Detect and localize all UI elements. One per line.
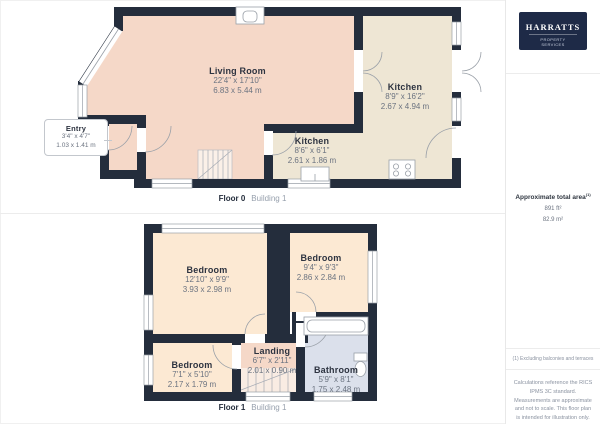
- fireplace-inner-icon: [243, 11, 257, 22]
- building-caption-label: Building 1: [251, 403, 286, 412]
- floorplan-page: Living Room 22'4" x 17'10" 6.83 x 5.44 m…: [0, 0, 600, 424]
- floor0-stairs: [198, 150, 232, 179]
- toilet-bowl-icon: [355, 362, 366, 377]
- floor0-plan-drawing: [0, 0, 505, 213]
- disclaimer-section: Calculations reference the RICS IPMS 3C …: [506, 370, 600, 424]
- room-dim-metric: 1.03 x 1.41 m: [47, 142, 105, 151]
- floor1-room-fills: [153, 224, 368, 392]
- floor1-caption: Floor 1Building 1: [0, 403, 505, 412]
- floor1-plan-drawing: [0, 213, 505, 424]
- entry-callout-tail: [104, 140, 112, 141]
- room-dim-imperial: 3'4" x 4'7": [47, 133, 105, 142]
- toilet-tank-icon: [354, 353, 367, 361]
- floor-caption-label: Floor 0: [219, 194, 246, 203]
- total-area-metric: 82.9 m²: [506, 217, 600, 223]
- total-area-imperial: 891 ft²: [506, 206, 600, 212]
- brand-section: HARRATTS PROPERTY SERVICES: [506, 12, 600, 74]
- room-name: Entry: [47, 124, 105, 133]
- harratts-logo: HARRATTS PROPERTY SERVICES: [519, 12, 587, 50]
- floor-caption-label: Floor 1: [219, 403, 246, 412]
- floor0-caption: Floor 0Building 1: [0, 194, 505, 203]
- total-area-section: Approximate total area(1) 891 ft² 82.9 m…: [506, 74, 600, 349]
- building-caption-label: Building 1: [251, 194, 286, 203]
- footnote-reference: (1): [586, 192, 591, 197]
- info-sidebar: HARRATTS PROPERTY SERVICES Approximate t…: [505, 0, 600, 424]
- stove-icon: [389, 160, 415, 179]
- disclaimer-text: Calculations reference the RICS IPMS 3C …: [506, 370, 600, 423]
- footnote: (1) Excluding balconies and terraces: [506, 349, 600, 370]
- total-area-label-text: Approximate total area: [515, 194, 585, 201]
- floor-panel-divider: [0, 213, 505, 214]
- brand-tagline: PROPERTY SERVICES: [529, 34, 577, 47]
- brand-name: HARRATTS: [519, 12, 587, 32]
- entry-callout: Entry 3'4" x 4'7" 1.03 x 1.41 m: [44, 119, 108, 156]
- total-area-label: Approximate total area(1): [506, 192, 600, 201]
- bathtub-inner-icon: [307, 320, 365, 332]
